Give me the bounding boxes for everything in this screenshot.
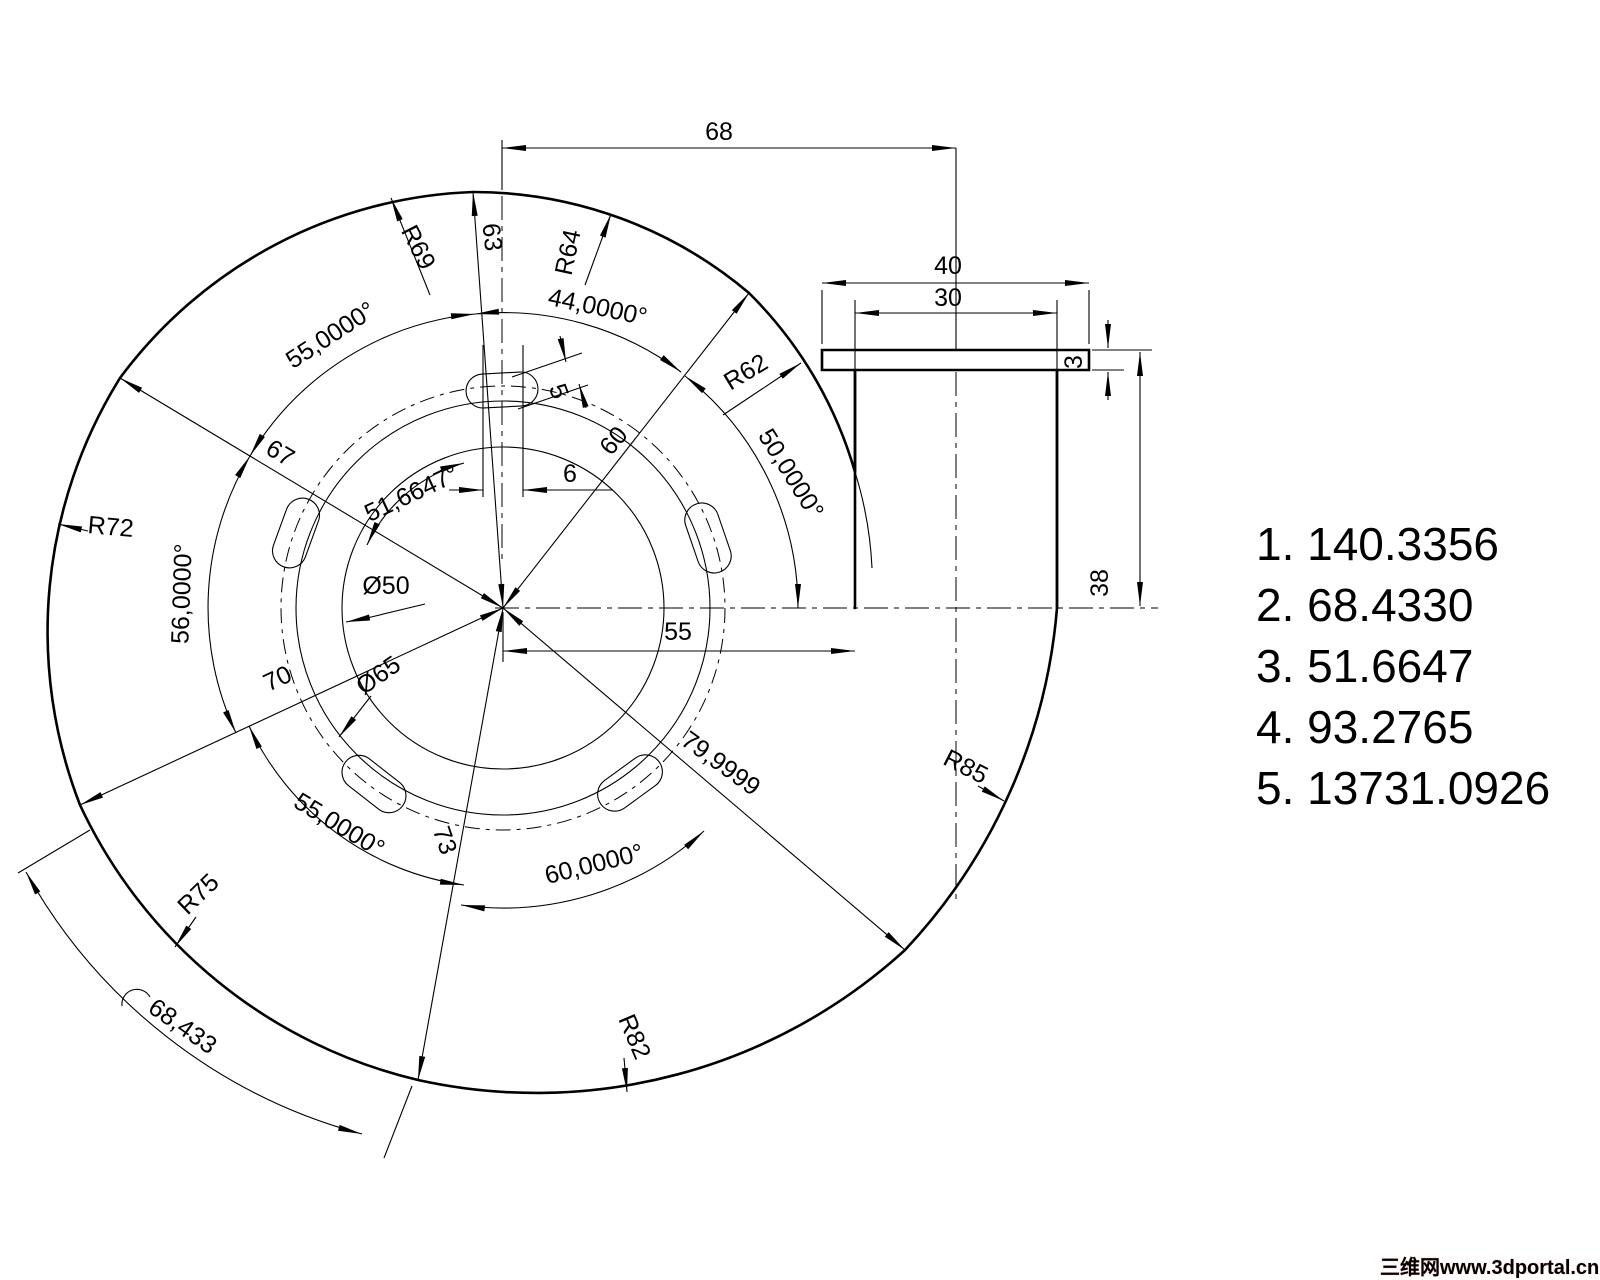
radial-70-label: 70: [259, 660, 296, 697]
dia-65-label: Ø65: [351, 650, 406, 700]
radius-r75-label: R75: [172, 868, 224, 920]
dim-68-label: 68: [705, 118, 733, 146]
tongue-arc: [855, 472, 872, 568]
watermark-text: 三维网www.3dportal.cn: [1380, 1255, 1599, 1279]
radius-r82-label: R82: [613, 1010, 657, 1063]
arc-68433-label: 68,433: [143, 993, 222, 1060]
radius-r85-label: R85: [939, 744, 993, 790]
dimension-labels: 68 40 30 3 38 55 6 5 Ø50 Ø65 44,0000° 50…: [87, 118, 1114, 1063]
angle-50-label: 50,0000°: [752, 424, 829, 524]
flange-plate: [822, 350, 1089, 370]
cad-drawing-page: 68 40 30 3 38 55 6 5 Ø50 Ø65 44,0000° 50…: [0, 0, 1600, 1280]
radial-dimension-lines: [80, 192, 905, 1080]
radial-60-label: 60: [594, 421, 633, 460]
answer-item-1: 1. 140.3356: [1256, 518, 1499, 570]
angle-dimension-arcs: [18, 313, 798, 1158]
dim-30-label: 30: [934, 284, 962, 312]
dim-40-label: 40: [934, 252, 962, 280]
radius-r69-label: R69: [395, 221, 441, 275]
dim-5-label: 5: [543, 380, 574, 403]
volute-outline: [48, 192, 1057, 1093]
radius-r72-label: R72: [87, 511, 135, 543]
radial-79-label: 79,9999: [676, 726, 766, 802]
slot-upper-left: [268, 493, 325, 572]
answer-item-4: 4. 93.2765: [1256, 701, 1473, 753]
answer-item-5: 5. 13731.0926: [1256, 762, 1550, 814]
slot-lower-right: [591, 748, 669, 818]
arc-length-symbol: [122, 989, 150, 1006]
slot-right: [680, 498, 736, 577]
radius-leaders: [58, 198, 1004, 1092]
radius-r64-label: R64: [550, 227, 587, 278]
angle-44-label: 44,0000°: [546, 283, 650, 331]
slot-lower-left: [335, 748, 413, 819]
angle-56-label: 56,0000°: [166, 543, 197, 644]
radial-73-label: 73: [427, 823, 463, 858]
dia-50-label: Ø50: [362, 572, 409, 600]
dim-3-label: 3: [1060, 355, 1088, 369]
dim-38-label: 38: [1086, 569, 1114, 597]
answer-item-3: 3. 51.6647: [1256, 640, 1473, 692]
radius-r62-label: R62: [719, 348, 773, 396]
angle-55-bottom-left-label: 55,0000°: [289, 787, 389, 863]
slot-dimensions: [449, 336, 612, 497]
dim-55-label: 55: [664, 618, 692, 646]
answers-list: 1. 140.3356 2. 68.4330 3. 51.6647 4. 93.…: [1256, 518, 1550, 814]
dim-6-label: 6: [563, 460, 577, 488]
radial-63-label: 63: [477, 222, 508, 253]
answer-item-2: 2. 68.4330: [1256, 579, 1473, 631]
volute-technical-drawing: 68 40 30 3 38 55 6 5 Ø50 Ø65 44,0000° 50…: [0, 0, 1600, 1280]
angle-55-top-left-label: 55,0000°: [281, 296, 380, 374]
angle-51-label: 51,6647°: [360, 460, 463, 528]
angle-60-label: 60,0000°: [542, 839, 646, 890]
part-outline: [48, 192, 1089, 1093]
